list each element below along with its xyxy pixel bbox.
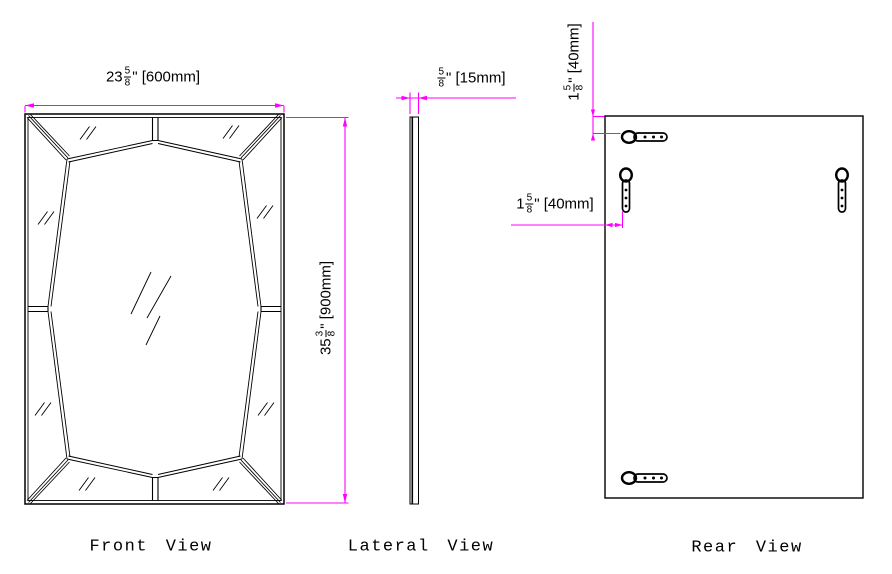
dim-fraction: 38 xyxy=(315,330,338,338)
dim-fraction: 58 xyxy=(437,67,445,90)
front-view-drawing xyxy=(25,114,284,504)
rear-view-label: Rear View xyxy=(691,539,802,558)
lateral-view-label: Lateral View xyxy=(348,538,494,557)
front-view-facet-seams xyxy=(27,115,282,504)
rear-left-offset-dimension-label: 158" [40mm] xyxy=(516,193,593,216)
dim-whole: 1 xyxy=(567,92,582,100)
dim-rest: " [600mm] xyxy=(132,70,200,85)
front-height-dimension-label: 3538" [900mm] xyxy=(315,261,338,355)
dim-fraction: 58 xyxy=(563,84,586,92)
rear-top-offset-dimension xyxy=(591,22,621,141)
dim-whole: 1 xyxy=(516,197,524,212)
dim-rest: " [15mm] xyxy=(446,71,506,86)
dim-whole: 23 xyxy=(106,70,123,85)
dim-rest: " [40mm] xyxy=(534,197,594,212)
keyhole-hanger-bottom-icon xyxy=(622,472,667,484)
glass-hatch-marks xyxy=(35,126,274,491)
lateral-thickness-dimension-label: 58" [15mm] xyxy=(436,67,505,90)
front-width-dimension-label: 2358" [600mm] xyxy=(106,66,200,89)
keyhole-hanger-right-icon xyxy=(836,169,848,213)
dim-rest: " [40mm] xyxy=(567,23,582,83)
cad-drawing-page: 2358" [600mm] 3538" [900mm] 58" [15mm] 1… xyxy=(0,0,892,574)
dim-fraction: 58 xyxy=(124,66,132,89)
dim-whole: 35 xyxy=(319,338,334,355)
dim-fraction: 58 xyxy=(526,193,534,216)
lateral-thickness-dimension xyxy=(396,93,516,115)
rear-top-offset-dimension-label: 158" [40mm] xyxy=(563,23,586,100)
front-view-label: Front View xyxy=(89,538,212,557)
keyhole-hanger-left-icon xyxy=(620,169,632,213)
keyhole-hanger-top-icon xyxy=(622,131,667,143)
front-width-dimension xyxy=(25,103,284,112)
lateral-view-drawing xyxy=(410,117,419,504)
rear-view-drawing xyxy=(605,116,863,498)
dim-rest: " [900mm] xyxy=(319,261,334,329)
front-view-frame xyxy=(25,114,284,504)
